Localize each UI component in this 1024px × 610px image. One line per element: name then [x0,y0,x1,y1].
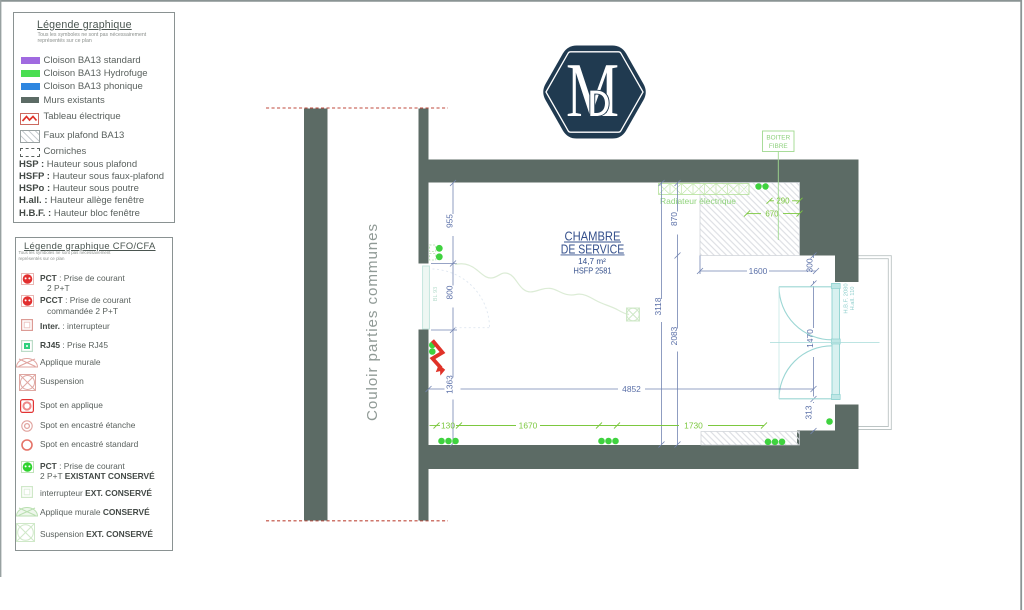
svg-text:870: 870 [669,212,679,226]
svg-text:3118: 3118 [653,297,663,315]
svg-text:290: 290 [776,197,790,206]
svg-text:Radiateur électrique: Radiateur électrique [660,197,736,206]
svg-text:BOITER: BOITER [766,135,790,142]
svg-text:313: 313 [804,405,814,419]
svg-text:1470: 1470 [805,329,815,348]
svg-text:4852: 4852 [622,384,641,394]
svg-text:955: 955 [445,214,455,228]
svg-text:14,7 m²: 14,7 m² [578,257,606,266]
svg-text:H.B.F. 2080: H.B.F. 2080 [844,283,850,313]
svg-text:300: 300 [805,258,815,272]
svg-text:670: 670 [765,209,779,218]
svg-text:DE SERVICE: DE SERVICE [561,242,625,256]
svg-text:FIBRE: FIBRE [769,143,788,150]
svg-text:1730: 1730 [684,421,703,431]
svg-text:Couloir parties communes: Couloir parties communes [364,223,381,421]
svg-text:HSFP 2581: HSFP 2581 [574,267,612,276]
svg-text:1670: 1670 [519,421,538,431]
svg-text:800: 800 [445,285,455,299]
svg-text:1363: 1363 [445,375,455,394]
svg-text:2083: 2083 [669,326,679,345]
svg-text:1600: 1600 [749,266,768,276]
svg-text:BL 93: BL 93 [433,287,439,301]
svg-text:CHAMBRE: CHAMBRE [565,230,621,244]
svg-text:130: 130 [441,421,455,431]
svg-text:H.all. 110: H.all. 110 [850,286,856,310]
